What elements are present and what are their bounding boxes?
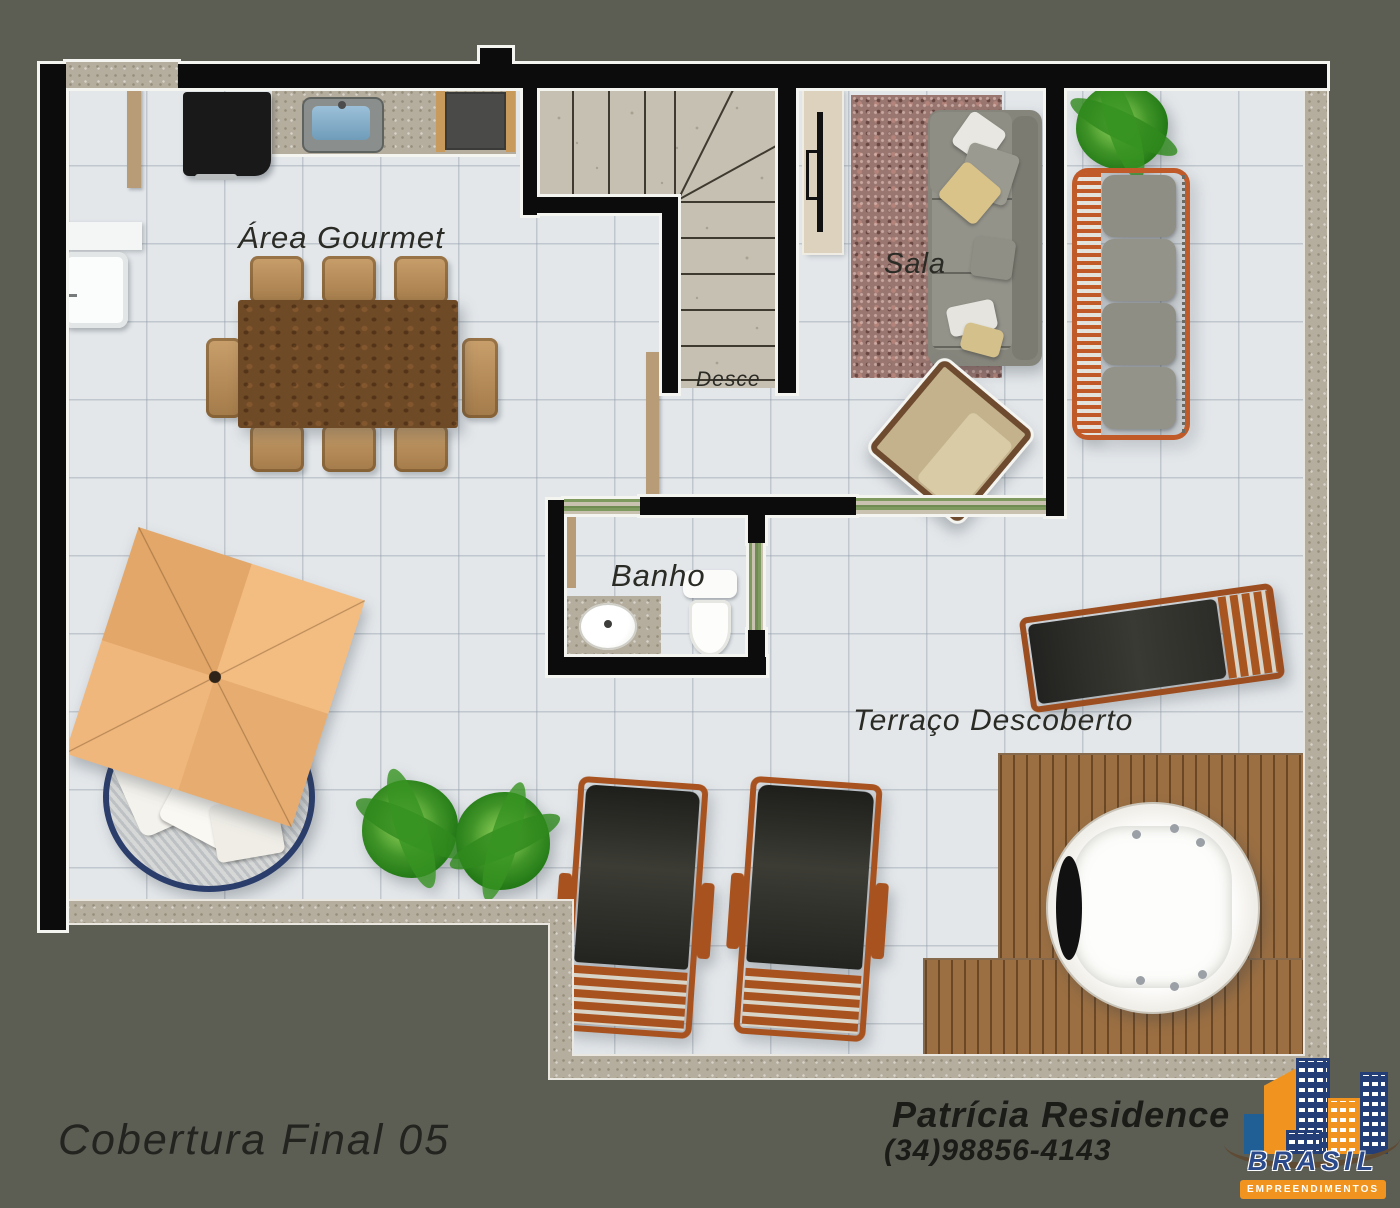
hot-tub-basin bbox=[1072, 826, 1232, 988]
contact-phone: (34)98856-4143 bbox=[884, 1134, 1112, 1168]
logo-brand-text: BRASIL bbox=[1230, 1146, 1396, 1177]
dining-chair bbox=[394, 256, 448, 304]
lounger-fabric bbox=[574, 784, 700, 970]
laundry-shelf bbox=[62, 222, 142, 250]
sofa-backrest bbox=[1012, 116, 1038, 360]
dining-chair bbox=[394, 424, 448, 472]
hot-tub-jet bbox=[1170, 824, 1179, 833]
hot-tub-jet bbox=[1136, 976, 1145, 985]
hot-tub-headrest bbox=[1056, 856, 1082, 960]
lounger-slats bbox=[742, 968, 862, 1034]
sun-lounger bbox=[733, 776, 883, 1043]
hot-tub-jet bbox=[1196, 838, 1205, 847]
toilet-bowl bbox=[689, 600, 731, 656]
plant bbox=[456, 792, 550, 890]
dining-chair bbox=[250, 424, 304, 472]
plant bbox=[362, 780, 458, 878]
stair-label-desce: Desce bbox=[696, 368, 761, 392]
cushion bbox=[1102, 303, 1176, 365]
cushion bbox=[1102, 367, 1176, 429]
dining-chair bbox=[206, 338, 242, 418]
grill-handle bbox=[195, 174, 237, 180]
room-label-terraco: Terraço Descoberto bbox=[853, 704, 1133, 738]
outdoor-sofa bbox=[1072, 168, 1190, 440]
sun-lounger bbox=[561, 776, 708, 1039]
dining-chair bbox=[462, 338, 498, 418]
stove-trim-right bbox=[506, 90, 515, 152]
kitchen-sink bbox=[302, 97, 384, 153]
logo-tagline-banner: EMPREENDIMENTOS bbox=[1240, 1180, 1386, 1199]
hot-tub-jet bbox=[1132, 830, 1141, 839]
tv-bracket-icon bbox=[806, 150, 822, 200]
kitchen-stove bbox=[445, 92, 506, 150]
hot-tub-jet bbox=[1198, 970, 1207, 979]
stove-trim-left bbox=[436, 90, 445, 152]
cushion bbox=[1102, 239, 1176, 301]
hot-tub bbox=[1046, 802, 1260, 1014]
laundry-faucet bbox=[56, 274, 77, 297]
plant-terrace bbox=[1076, 84, 1168, 170]
lounger-fabric bbox=[1028, 599, 1227, 705]
brand-logo: BRASIL EMPREENDIMENTOS bbox=[1230, 1058, 1396, 1204]
dining-table bbox=[238, 300, 458, 428]
kitchen-sink-basin bbox=[312, 106, 370, 140]
sofa-pillow-gray-2 bbox=[969, 235, 1016, 280]
staircase bbox=[537, 88, 778, 388]
lounger-slats bbox=[1218, 590, 1279, 678]
wall-top-notch bbox=[480, 48, 512, 66]
bath-door-leaf bbox=[566, 516, 576, 588]
plan-title: Cobertura Final 05 bbox=[58, 1116, 450, 1165]
bath-faucet bbox=[604, 620, 612, 628]
room-label-area-gourmet: Área Gourmet bbox=[238, 220, 445, 256]
kitchen-faucet bbox=[338, 101, 346, 109]
room-label-sala: Sala bbox=[884, 248, 946, 281]
parapet-bottom bbox=[550, 1056, 1327, 1078]
hot-tub-jet bbox=[1170, 982, 1179, 991]
room-label-banho: Banho bbox=[611, 558, 706, 594]
cushion bbox=[1102, 175, 1176, 237]
dining-chair bbox=[250, 256, 304, 304]
lounger-slats bbox=[570, 965, 688, 1031]
floorplan-image: Área Gourmet Sala Desce Banho Terraço De… bbox=[0, 0, 1400, 1208]
parapet-right bbox=[1305, 88, 1327, 1078]
contact-name: Patrícia Residence bbox=[892, 1094, 1230, 1136]
lounger-fabric bbox=[746, 784, 874, 970]
kitchen-grill bbox=[183, 92, 271, 176]
kitchen-door-leaf bbox=[127, 88, 141, 188]
dining-chair bbox=[322, 424, 376, 472]
dining-chair bbox=[322, 256, 376, 304]
hall-door-leaf bbox=[646, 352, 659, 494]
outdoor-sofa-cushions bbox=[1102, 175, 1185, 433]
outdoor-sofa-slats bbox=[1077, 173, 1101, 435]
